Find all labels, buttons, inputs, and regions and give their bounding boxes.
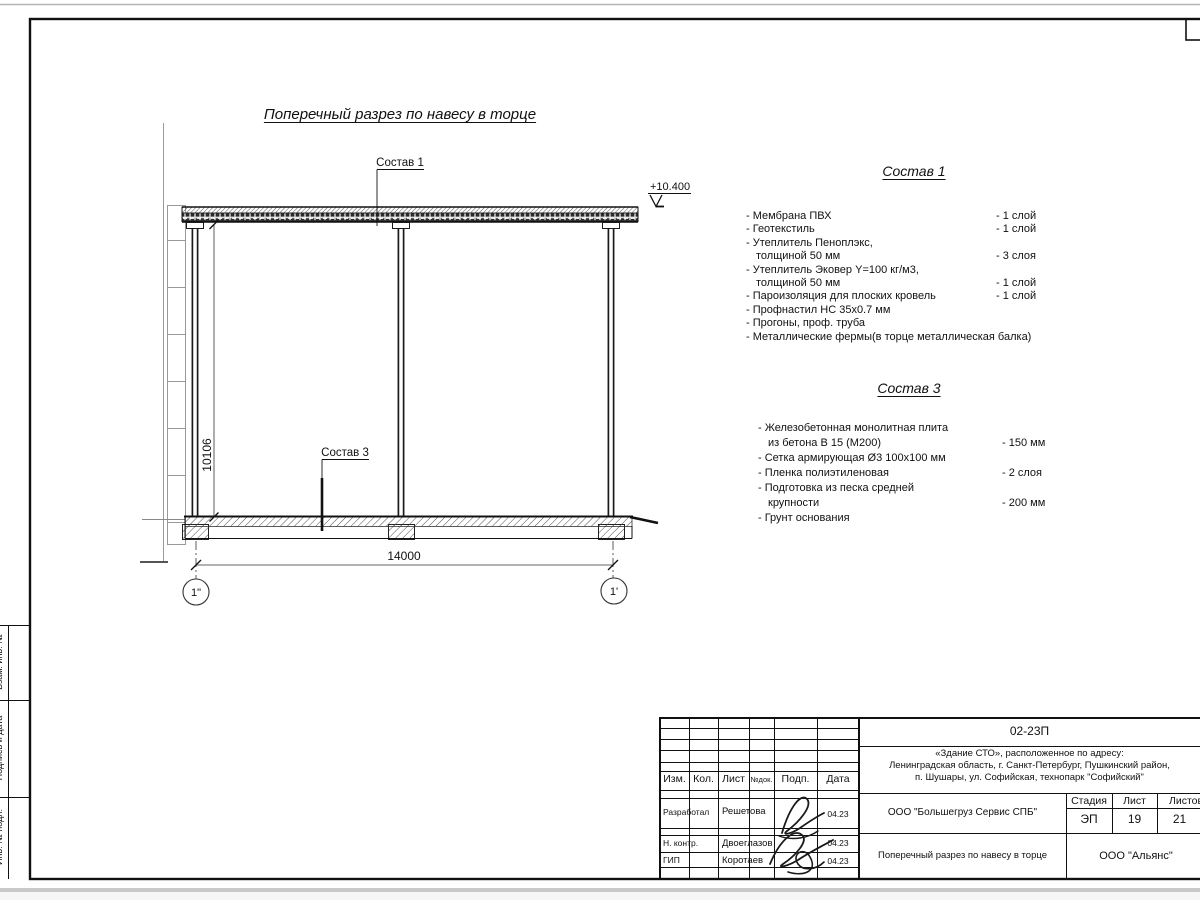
column-center xyxy=(393,223,410,518)
tb-date-razrabotal: 04.23 xyxy=(817,810,859,820)
list-item: - Геотекстиль- 1 слой xyxy=(746,223,1166,236)
leader-sostav3-label: Состав 3 xyxy=(321,447,369,459)
tb-drawing-name: Поперечный разрез по навесу в торце xyxy=(859,851,1066,862)
list-item: толщиной 50 мм- 3 слоя xyxy=(746,250,1166,263)
tb-sheets-value: 21 xyxy=(1157,813,1200,827)
dim-width-value: 14000 xyxy=(387,549,421,563)
tb-sheet-label: Лист xyxy=(1112,795,1157,807)
tb-name-gip: Коротаев xyxy=(722,856,763,867)
roof-deck-layer xyxy=(182,213,638,221)
side-label-vzam: Взам. инв. № xyxy=(0,626,6,698)
list-item: - Пароизоляция для плоских кровель- 1 сл… xyxy=(746,290,1166,303)
elevation-value: +10.400 xyxy=(650,181,690,193)
sostav1-list: - Мембрана ПВХ- 1 слой - Геотекстиль- 1 … xyxy=(746,210,1166,344)
tb-org: ООО "Альянс" xyxy=(1066,850,1200,863)
list-item: - Подготовка из песка средней xyxy=(758,482,1158,497)
axis-left-label: 1" xyxy=(191,587,201,599)
axis-left: 1" xyxy=(183,579,209,605)
tb-date-nkontr: 04.23 xyxy=(817,839,859,849)
tb-header-izm: Изм. xyxy=(660,773,689,785)
list-item: - Мембрана ПВХ- 1 слой xyxy=(746,210,1166,223)
list-item: - Железобетонная монолитная плита xyxy=(758,422,1158,437)
tb-address-line3: п. Шушары, ул. Софийская, технопарк "Соф… xyxy=(859,773,1200,784)
tb-header-kol: Кол. xyxy=(689,773,718,785)
list-item: - Сетка армирующая Ø3 100x100 мм xyxy=(758,452,1158,467)
tb-stage-label: Стадия xyxy=(1066,795,1112,807)
sostav3-heading: Состав 3 xyxy=(809,380,1009,396)
sostav3-list: - Железобетонная монолитная плита из бет… xyxy=(758,422,1158,527)
list-item: - Металлические фермы(в торце металличес… xyxy=(746,331,1166,344)
axis-right-label: 1' xyxy=(610,586,618,598)
roof-hatch-layer xyxy=(182,207,638,213)
sostav1-heading: Состав 1 xyxy=(814,163,1014,179)
tb-stage-value: ЭП xyxy=(1066,813,1112,827)
tb-address-line2: Ленинградская область, г. Санкт-Петербур… xyxy=(859,761,1200,772)
list-item: крупности- 200 мм xyxy=(758,497,1158,512)
tb-header-podp: Подп. xyxy=(774,773,817,785)
tb-header-list: Лист xyxy=(718,773,749,785)
tb-name-razrabotal: Решетова xyxy=(722,807,766,818)
tb-date-gip: 04.23 xyxy=(817,857,859,867)
side-label-podpis: Подпись и дата xyxy=(0,706,6,790)
tb-company: ООО "Большегруз Сервис СПБ" xyxy=(859,807,1066,819)
floor-slab xyxy=(183,517,659,540)
list-item: - Профнастил НС 35x0.7 мм xyxy=(746,304,1166,317)
list-item: - Грунт основания xyxy=(758,512,1158,527)
tb-sheet-value: 19 xyxy=(1112,813,1157,827)
roof-assembly xyxy=(182,207,638,222)
dim-height-value: 10106 xyxy=(200,438,214,472)
side-label-inv: Инв. № подл. xyxy=(0,801,6,873)
corner-box xyxy=(1186,19,1200,40)
slab-hatch xyxy=(185,517,632,527)
tb-doc-number: 02-23П xyxy=(859,725,1200,739)
tb-role-gip: ГИП xyxy=(663,856,680,866)
column-left xyxy=(187,223,204,518)
list-item: - Пленка полиэтиленовая- 2 слоя xyxy=(758,467,1158,482)
height-dimension: 10106 xyxy=(200,220,219,522)
leader-sostav1-label: Состав 1 xyxy=(376,157,424,169)
drawing-title: Поперечный разрез по навесу в торце xyxy=(150,106,650,123)
ground-line-right xyxy=(630,517,658,523)
tb-name-nkontr: Двоеглазов xyxy=(722,839,773,850)
width-dimension: 14000 xyxy=(191,541,618,579)
tb-role-razrabotal: Разработал xyxy=(663,808,709,818)
elevation-mark: +10.400 xyxy=(648,181,691,207)
tb-sheets-label: Листов xyxy=(1157,795,1200,807)
tb-role-nkontr: Н. контр. xyxy=(663,839,698,849)
list-item: из бетона В 15 (М200)- 150 мм xyxy=(758,437,1158,452)
column-right xyxy=(603,223,620,518)
tb-address-line1: «Здание СТО», расположенное по адресу: xyxy=(859,749,1200,760)
tb-header-ndok: №док. xyxy=(749,776,774,785)
adjacent-building xyxy=(140,123,186,562)
axis-right: 1' xyxy=(601,578,627,604)
drawing-sheet: +10.400 Состав 1 Состав 3 10106 xyxy=(0,0,1200,900)
list-item: толщиной 50 мм- 1 слой xyxy=(746,277,1166,290)
list-item: - Прогоны, проф. труба xyxy=(746,317,1166,330)
tb-header-data: Дата xyxy=(817,773,859,785)
list-item: - Утеплитель Пеноплэкс, xyxy=(746,237,1166,250)
list-item: - Утеплитель Эковер Y=100 кг/м3, xyxy=(746,264,1166,277)
